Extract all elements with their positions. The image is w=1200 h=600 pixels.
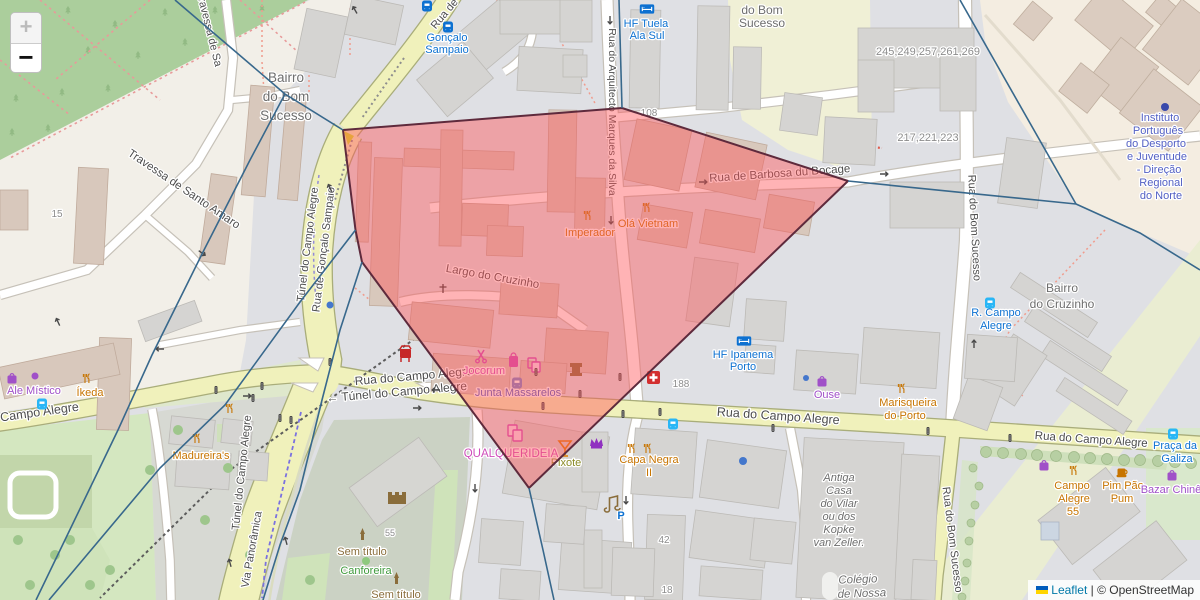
svg-text:Alegre: Alegre (1058, 493, 1090, 505)
svg-text:Sampaio: Sampaio (425, 44, 468, 56)
svg-text:Antiga: Antiga (822, 472, 854, 484)
svg-text:Kopke: Kopke (823, 524, 854, 536)
svg-text:Praça da: Praça da (1153, 440, 1198, 452)
svg-text:HF Ipanema: HF Ipanema (713, 349, 774, 361)
svg-text:Madureira's: Madureira's (172, 450, 230, 462)
svg-text:Bairro: Bairro (268, 70, 304, 85)
svg-text:do Bom: do Bom (741, 3, 782, 17)
svg-text:Casa: Casa (826, 485, 852, 497)
svg-text:e Juventude: e Juventude (1127, 151, 1187, 163)
svg-text:55: 55 (385, 528, 395, 538)
svg-text:Sem título: Sem título (371, 589, 421, 600)
svg-text:Sucesso: Sucesso (260, 108, 312, 123)
svg-text:Pim Pão: Pim Pão (1102, 480, 1144, 492)
svg-text:Português: Português (1133, 125, 1184, 137)
svg-text:P: P (617, 510, 624, 522)
svg-text:Marisqueira: Marisqueira (879, 397, 937, 409)
svg-text:Instituto: Instituto (1141, 112, 1180, 124)
svg-text:do Cruzinho: do Cruzinho (1030, 297, 1095, 311)
svg-text:de Nossa: de Nossa (837, 587, 886, 600)
svg-text:55: 55 (1067, 506, 1079, 518)
svg-text:Regional: Regional (1139, 177, 1182, 189)
svg-text:Bazar Chinê: Bazar Chinê (1141, 484, 1200, 496)
svg-text:do Desporto: do Desporto (1126, 138, 1186, 150)
svg-text:Canforeira: Canforeira (340, 565, 392, 577)
svg-text:Porto: Porto (730, 361, 756, 373)
svg-text:- Direção: - Direção (1137, 164, 1182, 176)
svg-text:ou dos: ou dos (822, 511, 856, 523)
svg-text:do Vilar: do Vilar (820, 498, 858, 510)
svg-text:Alegre: Alegre (980, 320, 1012, 332)
svg-text:II: II (646, 467, 652, 479)
svg-text:Sucesso: Sucesso (739, 16, 785, 30)
svg-text:R. Campo: R. Campo (971, 307, 1021, 319)
svg-text:Campo: Campo (1054, 480, 1089, 492)
svg-text:Colégio: Colégio (838, 573, 878, 586)
svg-text:Bairro: Bairro (1046, 281, 1078, 295)
svg-text:Capa Negra: Capa Negra (619, 454, 679, 466)
svg-text:do Norte: do Norte (1140, 190, 1182, 202)
svg-text:Ouse: Ouse (814, 389, 840, 401)
svg-text:42: 42 (658, 535, 670, 546)
svg-text:Pum: Pum (1111, 493, 1134, 505)
svg-text:van Zeller.: van Zeller. (814, 537, 865, 549)
svg-text:18: 18 (661, 585, 673, 596)
svg-text:do Bom: do Bom (263, 89, 310, 104)
svg-text:Sem título: Sem título (337, 546, 387, 558)
svg-text:Gonçalo: Gonçalo (427, 32, 468, 44)
svg-text:245,249,257,261,269: 245,249,257,261,269 (876, 46, 980, 58)
svg-text:HF Tuela: HF Tuela (624, 18, 670, 30)
svg-text:Ale Místico: Ale Místico (7, 385, 61, 397)
svg-text:do Porto: do Porto (884, 410, 926, 422)
svg-text:217,221,223: 217,221,223 (897, 132, 958, 144)
svg-text:Ala Sul: Ala Sul (630, 30, 665, 42)
svg-text:Íkeda: Íkeda (77, 386, 105, 399)
svg-text:15: 15 (51, 209, 63, 220)
svg-text:Galiza: Galiza (1161, 453, 1193, 465)
svg-text:188: 188 (673, 379, 690, 390)
